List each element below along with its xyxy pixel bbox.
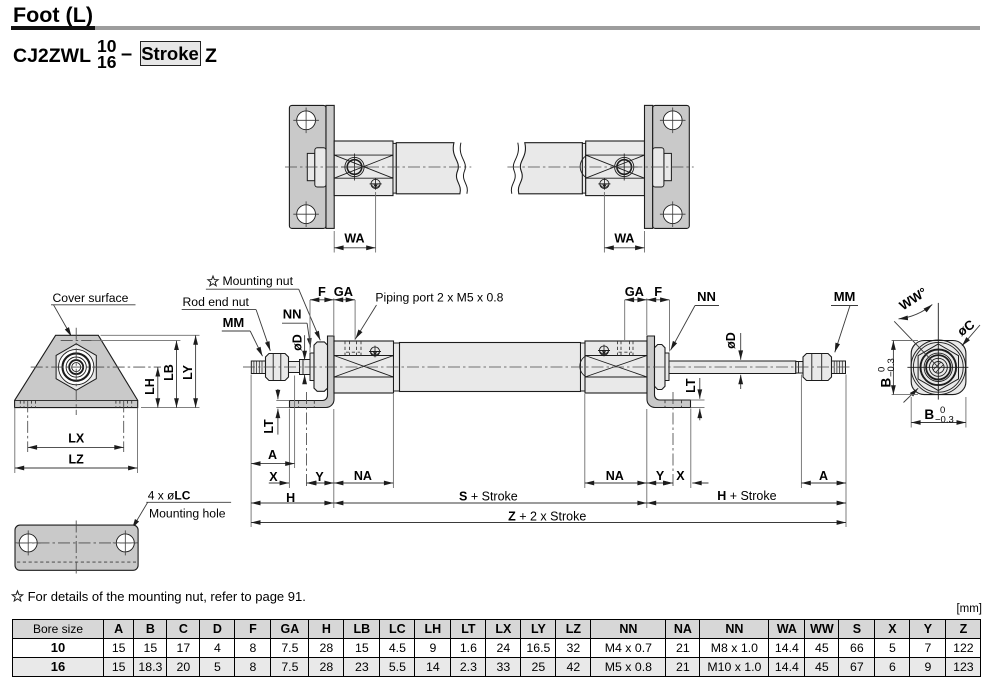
svg-text:Z + 2 x Stroke: Z + 2 x Stroke: [508, 509, 586, 523]
svg-text:Piping port 2 x M5 x 0.8: Piping port 2 x M5 x 0.8: [375, 291, 503, 305]
svg-text:B: B: [879, 378, 894, 388]
svg-text:LH: LH: [143, 378, 157, 395]
svg-text:GA: GA: [334, 284, 353, 299]
svg-text:F: F: [654, 284, 662, 299]
svg-text:Mounting nut: Mounting nut: [223, 274, 294, 288]
svg-text:Rod end nut: Rod end nut: [183, 295, 250, 309]
svg-text:Cover surface: Cover surface: [53, 291, 129, 305]
svg-text:H + Stroke: H + Stroke: [717, 489, 776, 503]
svg-text:X: X: [269, 470, 278, 484]
svg-text:Y: Y: [315, 470, 324, 484]
svg-text:F: F: [318, 284, 326, 299]
svg-text:WA: WA: [344, 231, 364, 245]
svg-text:NA: NA: [606, 469, 624, 483]
svg-text:WA: WA: [614, 231, 634, 245]
svg-text:MM: MM: [834, 289, 856, 304]
svg-text:A: A: [819, 469, 828, 483]
svg-text:LZ: LZ: [69, 452, 85, 466]
svg-text:øD: øD: [291, 334, 305, 351]
svg-text:4 x øLC: 4 x øLC: [148, 489, 191, 503]
svg-text:Mounting hole: Mounting hole: [149, 507, 226, 521]
svg-text:−0.3: −0.3: [886, 358, 897, 377]
svg-text:LT: LT: [262, 419, 276, 434]
svg-text:LB: LB: [162, 364, 176, 381]
svg-text:øD: øD: [724, 332, 738, 349]
svg-text:WW°: WW°: [896, 284, 929, 313]
svg-text:øC: øC: [955, 316, 978, 339]
svg-text:A: A: [268, 448, 277, 462]
svg-text:B: B: [924, 407, 934, 422]
svg-text:LX: LX: [68, 432, 85, 446]
svg-text:NN: NN: [697, 289, 716, 304]
svg-text:MM: MM: [223, 315, 245, 330]
svg-text:−0.3: −0.3: [935, 415, 954, 426]
svg-text:X: X: [676, 469, 685, 483]
svg-text:LT: LT: [684, 378, 698, 393]
svg-text:GA: GA: [625, 284, 644, 299]
svg-text:H: H: [286, 491, 295, 505]
svg-text:LY: LY: [181, 364, 195, 379]
svg-text:S + Stroke: S + Stroke: [459, 490, 518, 504]
svg-text:NA: NA: [354, 469, 372, 483]
svg-text:Y: Y: [656, 469, 665, 483]
svg-text:NN: NN: [283, 307, 302, 322]
